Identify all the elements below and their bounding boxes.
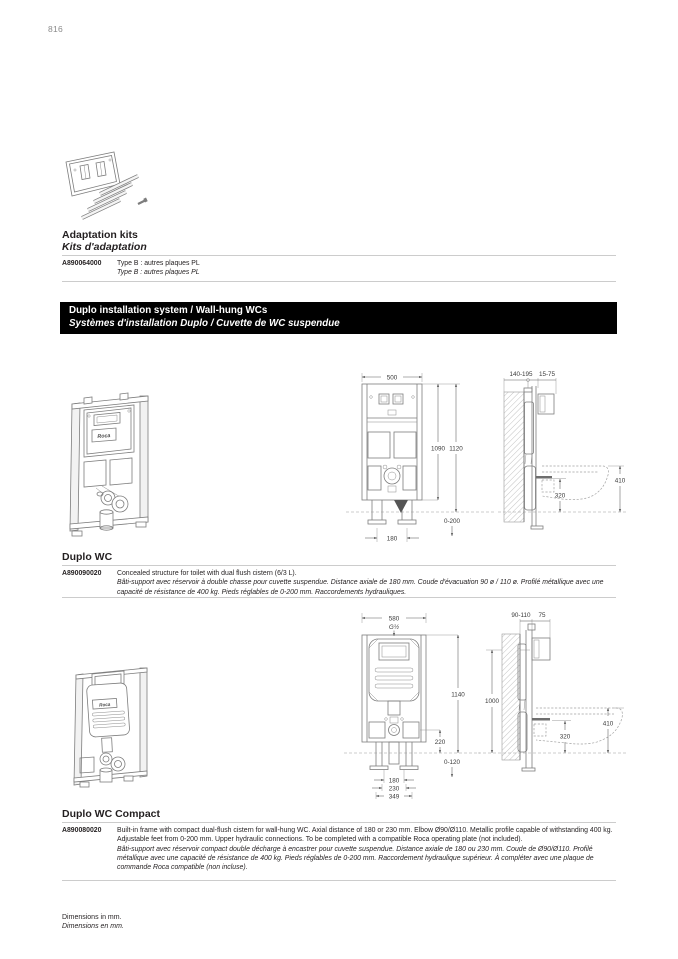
dim-label-height-inner: 1090 — [431, 446, 446, 453]
adaptation-title-en: Adaptation kits — [62, 229, 138, 241]
product-code: A890090020 — [62, 569, 117, 597]
banner-title-fr: Systèmes d'installation Duplo / Cuvette … — [69, 318, 608, 331]
divider — [62, 565, 616, 566]
footer-note-fr: Dimensions en mm. — [62, 922, 124, 931]
dim-label-depth-wall: 90-110 — [511, 612, 531, 619]
dim-label-base-width: 349 — [389, 794, 400, 801]
product-row-duplo-compact: A890080020 Built-in frame with compact d… — [62, 826, 616, 872]
duplo-compact-frame-illustration: Roca — [62, 662, 162, 792]
dim-label-connection: G½ — [389, 623, 400, 631]
product-code: A890080020 — [62, 826, 117, 872]
product-row-adaptation: A890064000 Type B : autres plaques PL Ty… — [62, 259, 616, 278]
adaptation-title-fr: Kits d'adaptation — [62, 241, 147, 253]
product-desc-en: Type B : autres plaques PL — [117, 259, 616, 268]
footer-note-en: Dimensions in mm. — [62, 913, 124, 922]
duplo-wc-side-dimension-drawing: 140-195 15-75 320 — [498, 368, 628, 560]
duplo-wc-frame-illustration: Roca — [56, 390, 162, 546]
divider — [62, 255, 616, 256]
dim-label-depth-plate: 15-75 — [539, 371, 556, 378]
dim-label-bowl-height: 410 — [615, 478, 626, 485]
section-banner: Duplo installation system / Wall-hung WC… — [60, 302, 617, 334]
banner-title-en: Duplo installation system / Wall-hung WC… — [69, 305, 608, 318]
duplo-compact-title: Duplo WC Compact — [62, 808, 160, 820]
dim-label-height-outer: 1140 — [451, 692, 465, 699]
dim-label-axial: 180 — [387, 536, 398, 543]
dim-label-outlet-height: 320 — [555, 493, 566, 500]
product-desc-fr: Type B : autres plaques PL — [117, 268, 616, 277]
brand-logo: Roca — [97, 433, 110, 440]
dim-label-depth-plate: 75 — [538, 612, 546, 619]
dim-label-feet-range: 0-120 — [444, 759, 461, 766]
dim-label-axial-2: 230 — [389, 786, 400, 793]
product-desc-en: Built-in frame with compact dual-flush c… — [117, 826, 616, 845]
divider — [62, 281, 616, 282]
adaptation-kit-drawing — [58, 148, 150, 230]
dim-label-outlet-drop: 220 — [435, 739, 446, 746]
duplo-compact-front-dimension-drawing: 580 G½ 1140 — [340, 610, 480, 806]
dim-label-outlet-height: 320 — [560, 734, 571, 741]
product-row-duplo-wc: A890090020 Concealed structure for toile… — [62, 569, 616, 597]
catalog-page: 816 Adaptation kits Kits d'adaptation A8… — [0, 0, 678, 959]
dim-label-height-outer: 1120 — [449, 446, 463, 453]
product-desc-fr: Bâti-support avec réservoir compact doub… — [117, 845, 616, 873]
divider — [62, 880, 616, 881]
footer-note: Dimensions in mm. Dimensions en mm. — [62, 913, 124, 931]
dim-label-feet-range: 0-200 — [444, 518, 461, 525]
brand-logo: Roca — [99, 702, 111, 708]
dim-label-connection-height: 1000 — [485, 698, 500, 705]
divider — [62, 822, 616, 823]
dim-label-width: 580 — [389, 615, 400, 622]
product-code: A890064000 — [62, 259, 117, 278]
page-number: 816 — [48, 24, 63, 34]
dim-label-bowl-height: 410 — [603, 721, 614, 728]
product-desc-fr: Bâti-support avec réservoir à double cha… — [117, 578, 616, 597]
divider — [62, 597, 616, 598]
dim-label-depth-wall: 140-195 — [509, 371, 533, 378]
duplo-wc-front-dimension-drawing: 500 1090 — [342, 370, 496, 560]
dim-label-width: 500 — [387, 374, 398, 381]
duplo-wc-title: Duplo WC — [62, 551, 112, 563]
duplo-compact-side-dimension-drawing: 90-110 75 1000 320 — [478, 610, 628, 806]
product-desc-en: Concealed structure for toilet with dual… — [117, 569, 616, 578]
dim-label-axial-1: 180 — [389, 778, 400, 785]
